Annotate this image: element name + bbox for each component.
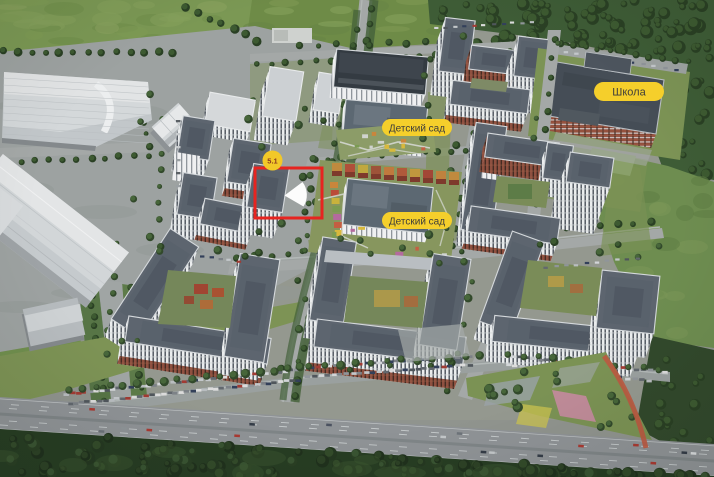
svg-text:Детский сад: Детский сад [389,217,445,228]
svg-text:Детский сад: Детский сад [389,124,445,135]
svg-text:5.1: 5.1 [267,157,277,166]
svg-text:Школа: Школа [612,87,646,99]
